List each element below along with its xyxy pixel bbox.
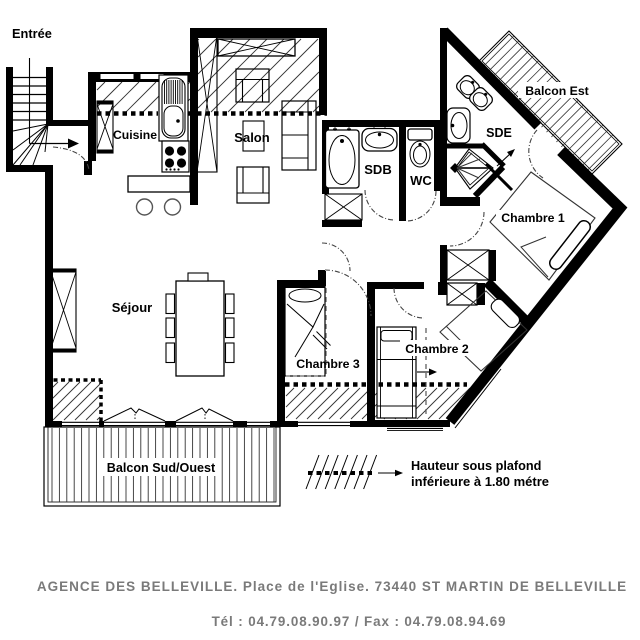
svg-text:Chambre 3: Chambre 3 bbox=[296, 357, 360, 371]
svg-text:Séjour: Séjour bbox=[112, 300, 152, 315]
svg-text:inférieure à 1.80 métre: inférieure à 1.80 métre bbox=[411, 474, 549, 489]
svg-text:SDB: SDB bbox=[364, 162, 391, 177]
svg-text:WC: WC bbox=[410, 173, 432, 188]
svg-text:Tél : 04.79.08.90.97 / Fax : 0: Tél : 04.79.08.90.97 / Fax : 04.79.08.94… bbox=[212, 614, 507, 629]
svg-text:Chambre 2: Chambre 2 bbox=[405, 342, 469, 356]
svg-text:Salon: Salon bbox=[234, 130, 269, 145]
svg-text:Balcon Est: Balcon Est bbox=[525, 84, 589, 98]
svg-text:Entrée: Entrée bbox=[12, 26, 52, 41]
svg-text:Cuisine: Cuisine bbox=[113, 128, 157, 142]
svg-text:AGENCE DES BELLEVILLE. Place d: AGENCE DES BELLEVILLE. Place de l'Eglise… bbox=[37, 579, 627, 594]
svg-text:SDE: SDE bbox=[486, 126, 512, 140]
svg-text:Balcon Sud/Ouest: Balcon Sud/Ouest bbox=[107, 461, 216, 475]
svg-text:Hauteur sous plafond: Hauteur sous plafond bbox=[411, 459, 541, 473]
svg-text:Chambre 1: Chambre 1 bbox=[501, 211, 565, 225]
